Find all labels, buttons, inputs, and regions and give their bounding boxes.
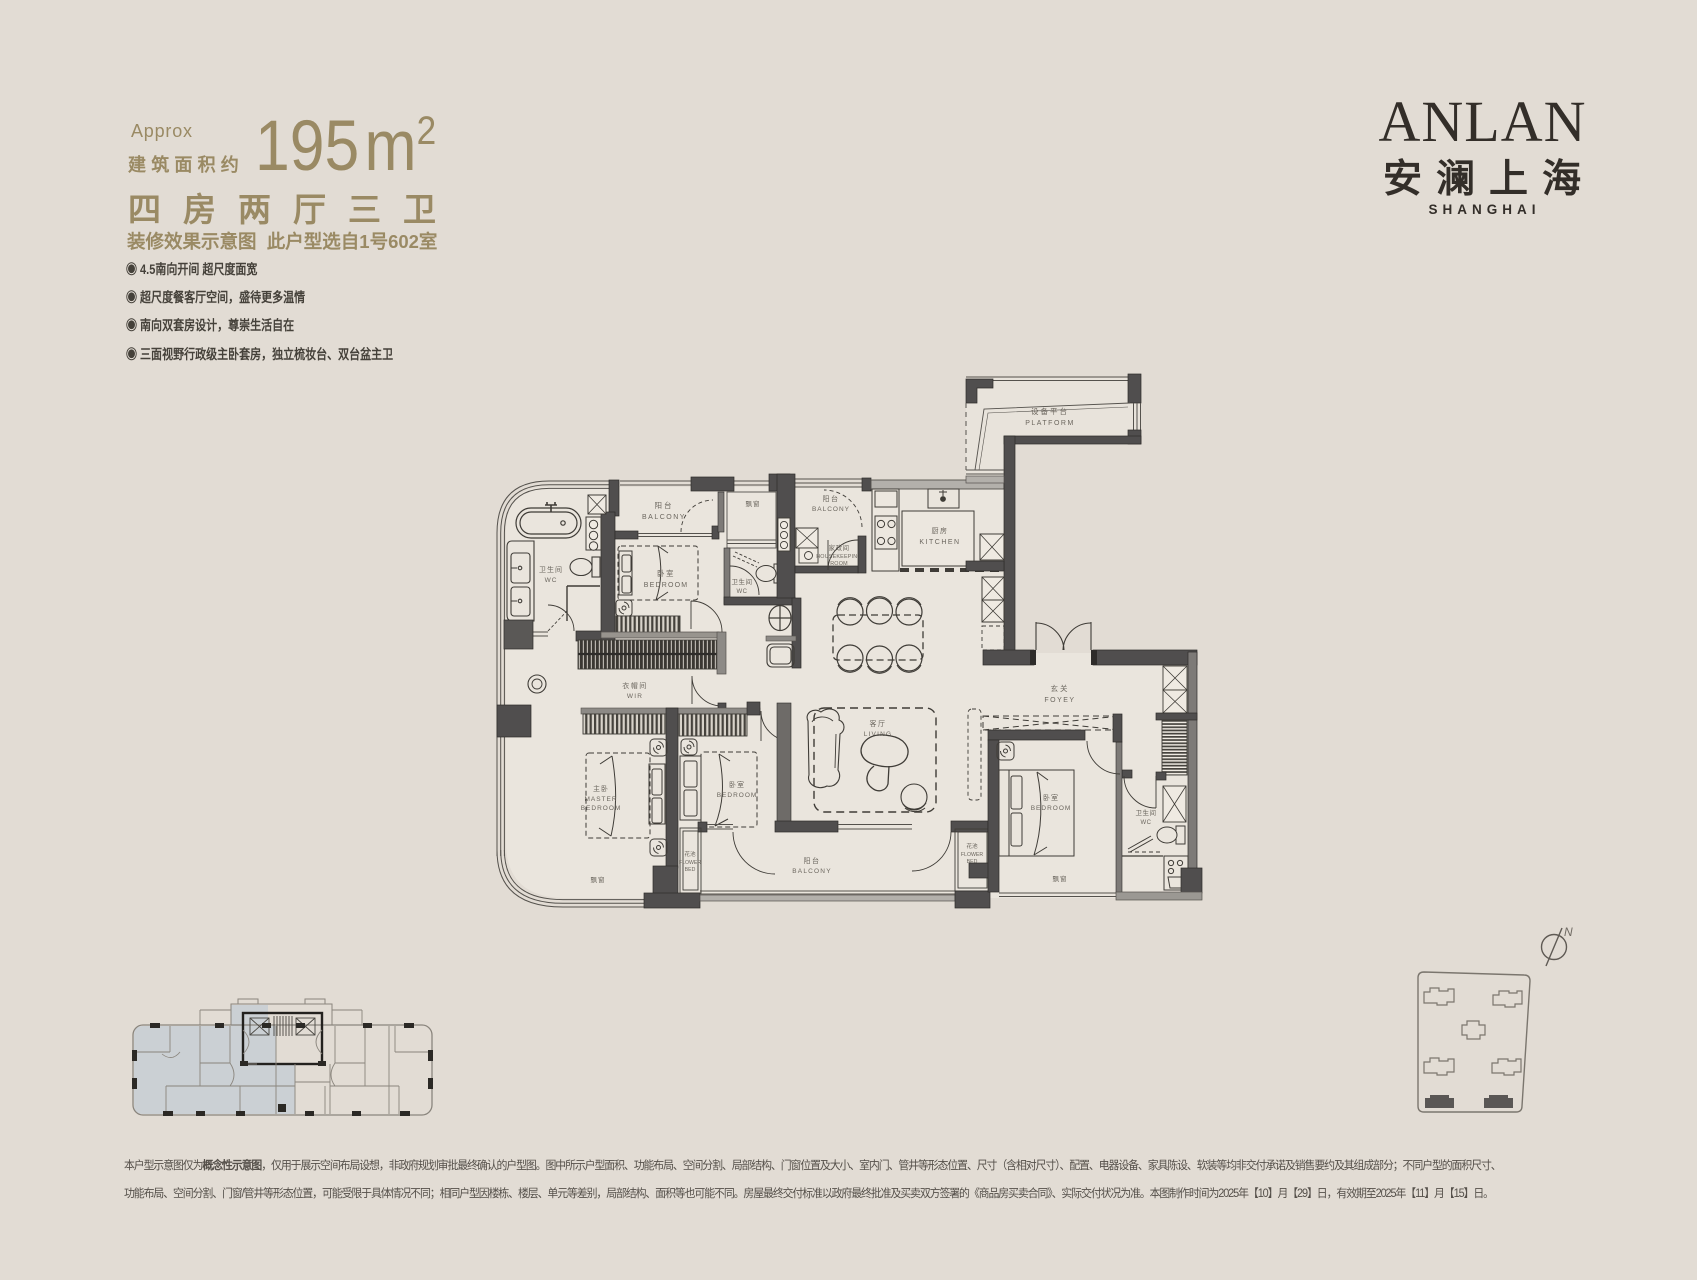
svg-text:阳台: 阳台 — [655, 500, 674, 510]
svg-text:FLOWER: FLOWER — [961, 852, 983, 858]
svg-text:BALCONY: BALCONY — [812, 506, 850, 513]
svg-text:设备平台: 设备平台 — [1031, 406, 1069, 416]
svg-text:花池: 花池 — [966, 842, 978, 850]
svg-text:FLOWER: FLOWER — [679, 860, 701, 866]
svg-text:卫生间: 卫生间 — [732, 577, 753, 586]
svg-text:BEDROOM: BEDROOM — [644, 582, 689, 589]
svg-text:阳台: 阳台 — [804, 856, 821, 865]
svg-text:BEDROOM: BEDROOM — [717, 792, 758, 799]
svg-text:飘窗: 飘窗 — [746, 499, 761, 508]
svg-text:KITCHEN: KITCHEN — [919, 539, 960, 546]
svg-text:花池: 花池 — [684, 850, 696, 858]
svg-text:衣帽间: 衣帽间 — [622, 681, 648, 690]
svg-text:卧室: 卧室 — [729, 780, 745, 789]
svg-text:WIR: WIR — [627, 693, 643, 700]
svg-text:BALCONY: BALCONY — [642, 514, 686, 521]
svg-text:玄关: 玄关 — [1051, 683, 1070, 693]
svg-text:BALCONY: BALCONY — [792, 868, 831, 875]
svg-text:WC: WC — [1141, 820, 1152, 826]
svg-text:家政间: 家政间 — [829, 543, 850, 552]
svg-text:卫生间: 卫生间 — [539, 565, 563, 574]
svg-text:HOUSEKEEPING: HOUSEKEEPING — [816, 554, 862, 560]
svg-text:MASTER: MASTER — [584, 796, 617, 803]
svg-text:飘窗: 飘窗 — [1053, 874, 1068, 883]
svg-text:飘窗: 飘窗 — [591, 875, 606, 884]
svg-text:阳台: 阳台 — [823, 494, 840, 503]
svg-text:BED: BED — [685, 867, 696, 873]
svg-text:WC: WC — [545, 577, 558, 584]
svg-text:BEDROOM: BEDROOM — [1031, 805, 1072, 812]
svg-text:WC: WC — [737, 589, 748, 595]
svg-text:厨房: 厨房 — [932, 526, 949, 535]
svg-text:卧室: 卧室 — [657, 568, 675, 578]
svg-text:卫生间: 卫生间 — [1136, 808, 1157, 817]
svg-text:主卧: 主卧 — [593, 784, 609, 793]
svg-text:PLATFORM: PLATFORM — [1025, 420, 1075, 427]
svg-text:N: N — [1564, 925, 1573, 939]
svg-text:客厅: 客厅 — [870, 719, 887, 728]
svg-text:卧室: 卧室 — [1043, 793, 1059, 802]
svg-text:BEDROOM: BEDROOM — [581, 805, 622, 812]
svg-text:FOYEY: FOYEY — [1044, 697, 1075, 704]
